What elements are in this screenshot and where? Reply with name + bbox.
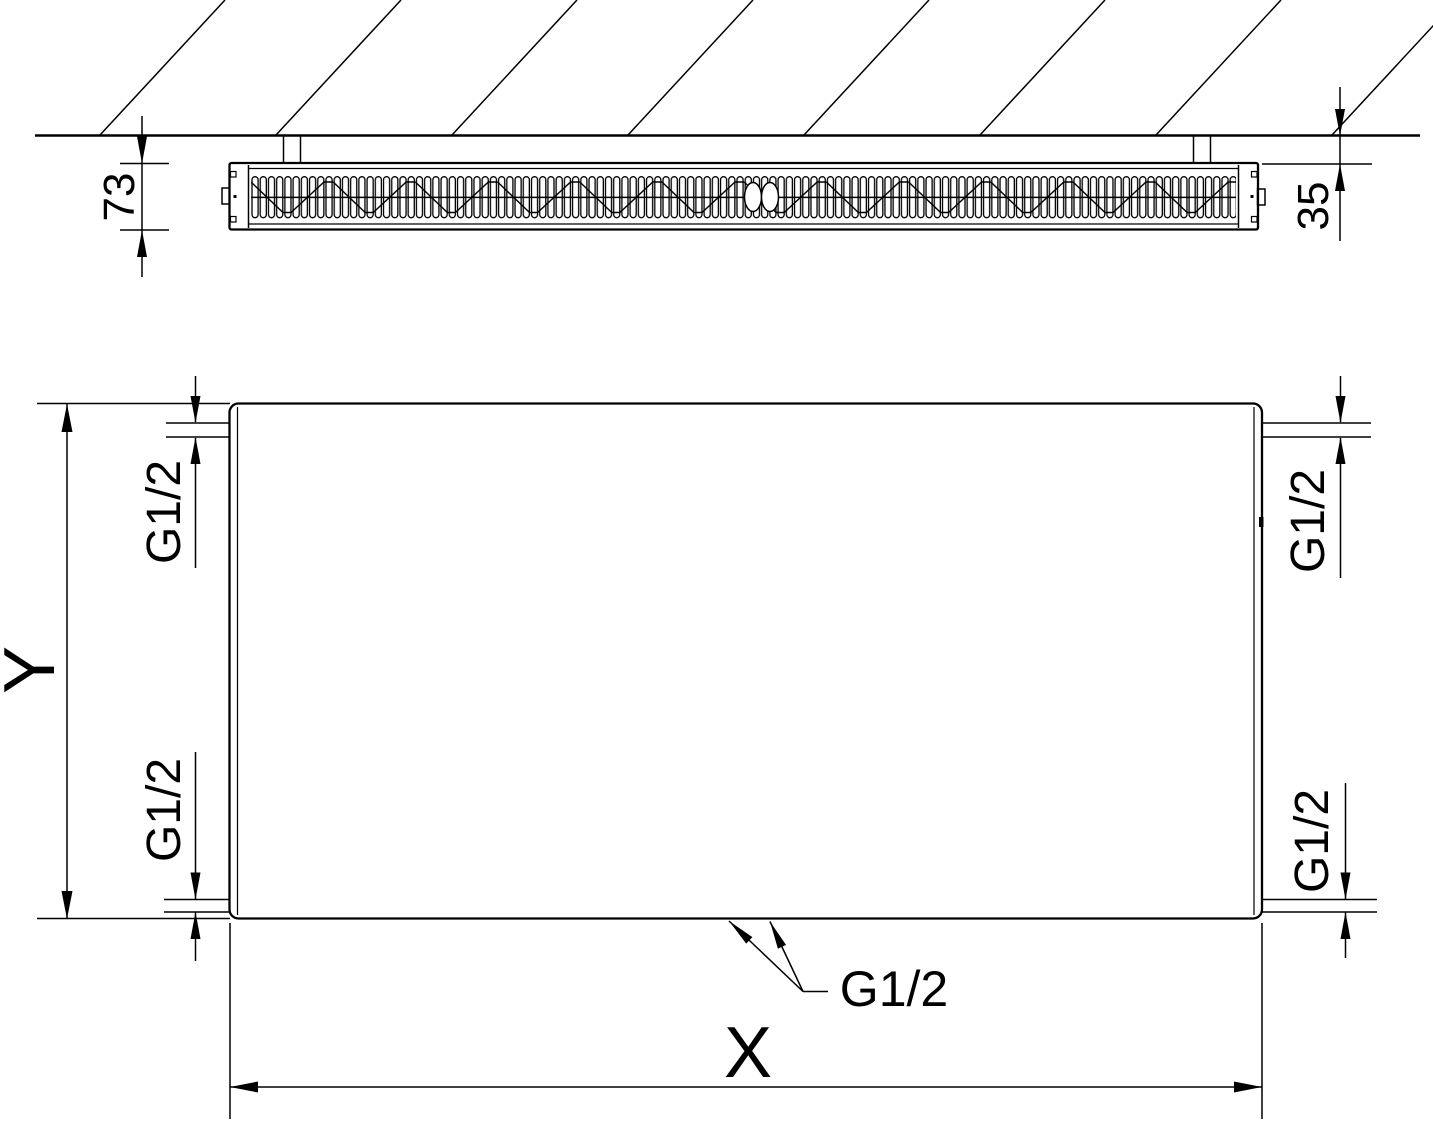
connection-stub-top-left	[166, 423, 229, 437]
center-connection-detail	[745, 183, 762, 212]
radiator-front-panel	[230, 404, 1263, 919]
thread-label-top-right: G1/2	[1282, 469, 1335, 573]
height-dimension-label: Y	[0, 646, 70, 694]
arrowhead-down	[1341, 873, 1351, 900]
arrowhead-up	[1336, 437, 1346, 464]
cap-dot	[1251, 195, 1254, 198]
leader-arrowhead	[729, 921, 752, 944]
mounting-bracket-left	[284, 136, 301, 163]
drawing-canvas: 73 35	[0, 0, 1433, 1125]
hatch-line	[804, 0, 929, 135]
dimension-depth: 73	[95, 116, 169, 277]
thread-label-top-left: G1/2	[138, 460, 191, 564]
mounting-bracket-right	[1194, 136, 1211, 163]
depth-dimension-label: 73	[95, 173, 144, 222]
arrowhead-down	[137, 137, 147, 164]
thread-label-bottom-right: G1/2	[1286, 789, 1339, 893]
thread-label-bottom-center: G1/2	[840, 961, 948, 1017]
arrowhead-down	[191, 873, 201, 900]
arrowhead-down	[191, 396, 201, 423]
wall-hatching	[100, 0, 1433, 135]
hatch-line	[100, 0, 225, 135]
width-dimension-label: X	[724, 1013, 772, 1093]
radiator-section	[222, 163, 1265, 230]
connection-stub-bottom-right	[1262, 900, 1377, 913]
arrowhead-down	[1336, 396, 1346, 423]
arrowhead-up	[191, 437, 201, 464]
hatch-line	[1156, 0, 1281, 135]
hatch-line	[980, 0, 1105, 135]
arrowhead-up	[137, 230, 147, 257]
radiator-technical-drawing: 73 35	[0, 0, 1433, 1125]
arrowhead-up	[191, 912, 201, 939]
front-view: G1/2 G1/2 G1/2 G1/2	[0, 376, 1377, 1119]
arrowhead-left	[230, 1082, 258, 1093]
arrowhead-up	[1341, 912, 1351, 939]
connection-leader-bottom-center: G1/2	[729, 921, 948, 1017]
hatch-line	[452, 0, 577, 135]
section-view: 73 35	[35, 0, 1433, 277]
hatch-line	[1332, 0, 1433, 135]
thread-label-bottom-left: G1/2	[138, 758, 191, 862]
leader-arrowhead	[770, 922, 786, 949]
dimension-connection-bottom-right: G1/2	[1286, 783, 1351, 958]
connection-stub-top-right	[1262, 423, 1371, 437]
arrowhead-right	[1234, 1082, 1262, 1093]
hatch-line	[276, 0, 401, 135]
dimension-connection-bottom-left: G1/2	[138, 752, 201, 961]
arrowhead-down	[62, 891, 73, 919]
cap-dot	[234, 195, 237, 198]
dimension-width: X	[230, 923, 1262, 1119]
wall-clearance-label: 35	[1289, 182, 1338, 231]
arrowhead-up	[62, 404, 73, 432]
center-connection-detail	[762, 183, 779, 212]
dimension-connection-top-right: G1/2	[1282, 376, 1346, 578]
hatch-line	[628, 0, 753, 135]
dimension-connection-top-left: G1/2	[138, 376, 201, 568]
panel-seam-mark	[1259, 517, 1264, 527]
connection-stub-bottom-left	[164, 900, 229, 913]
